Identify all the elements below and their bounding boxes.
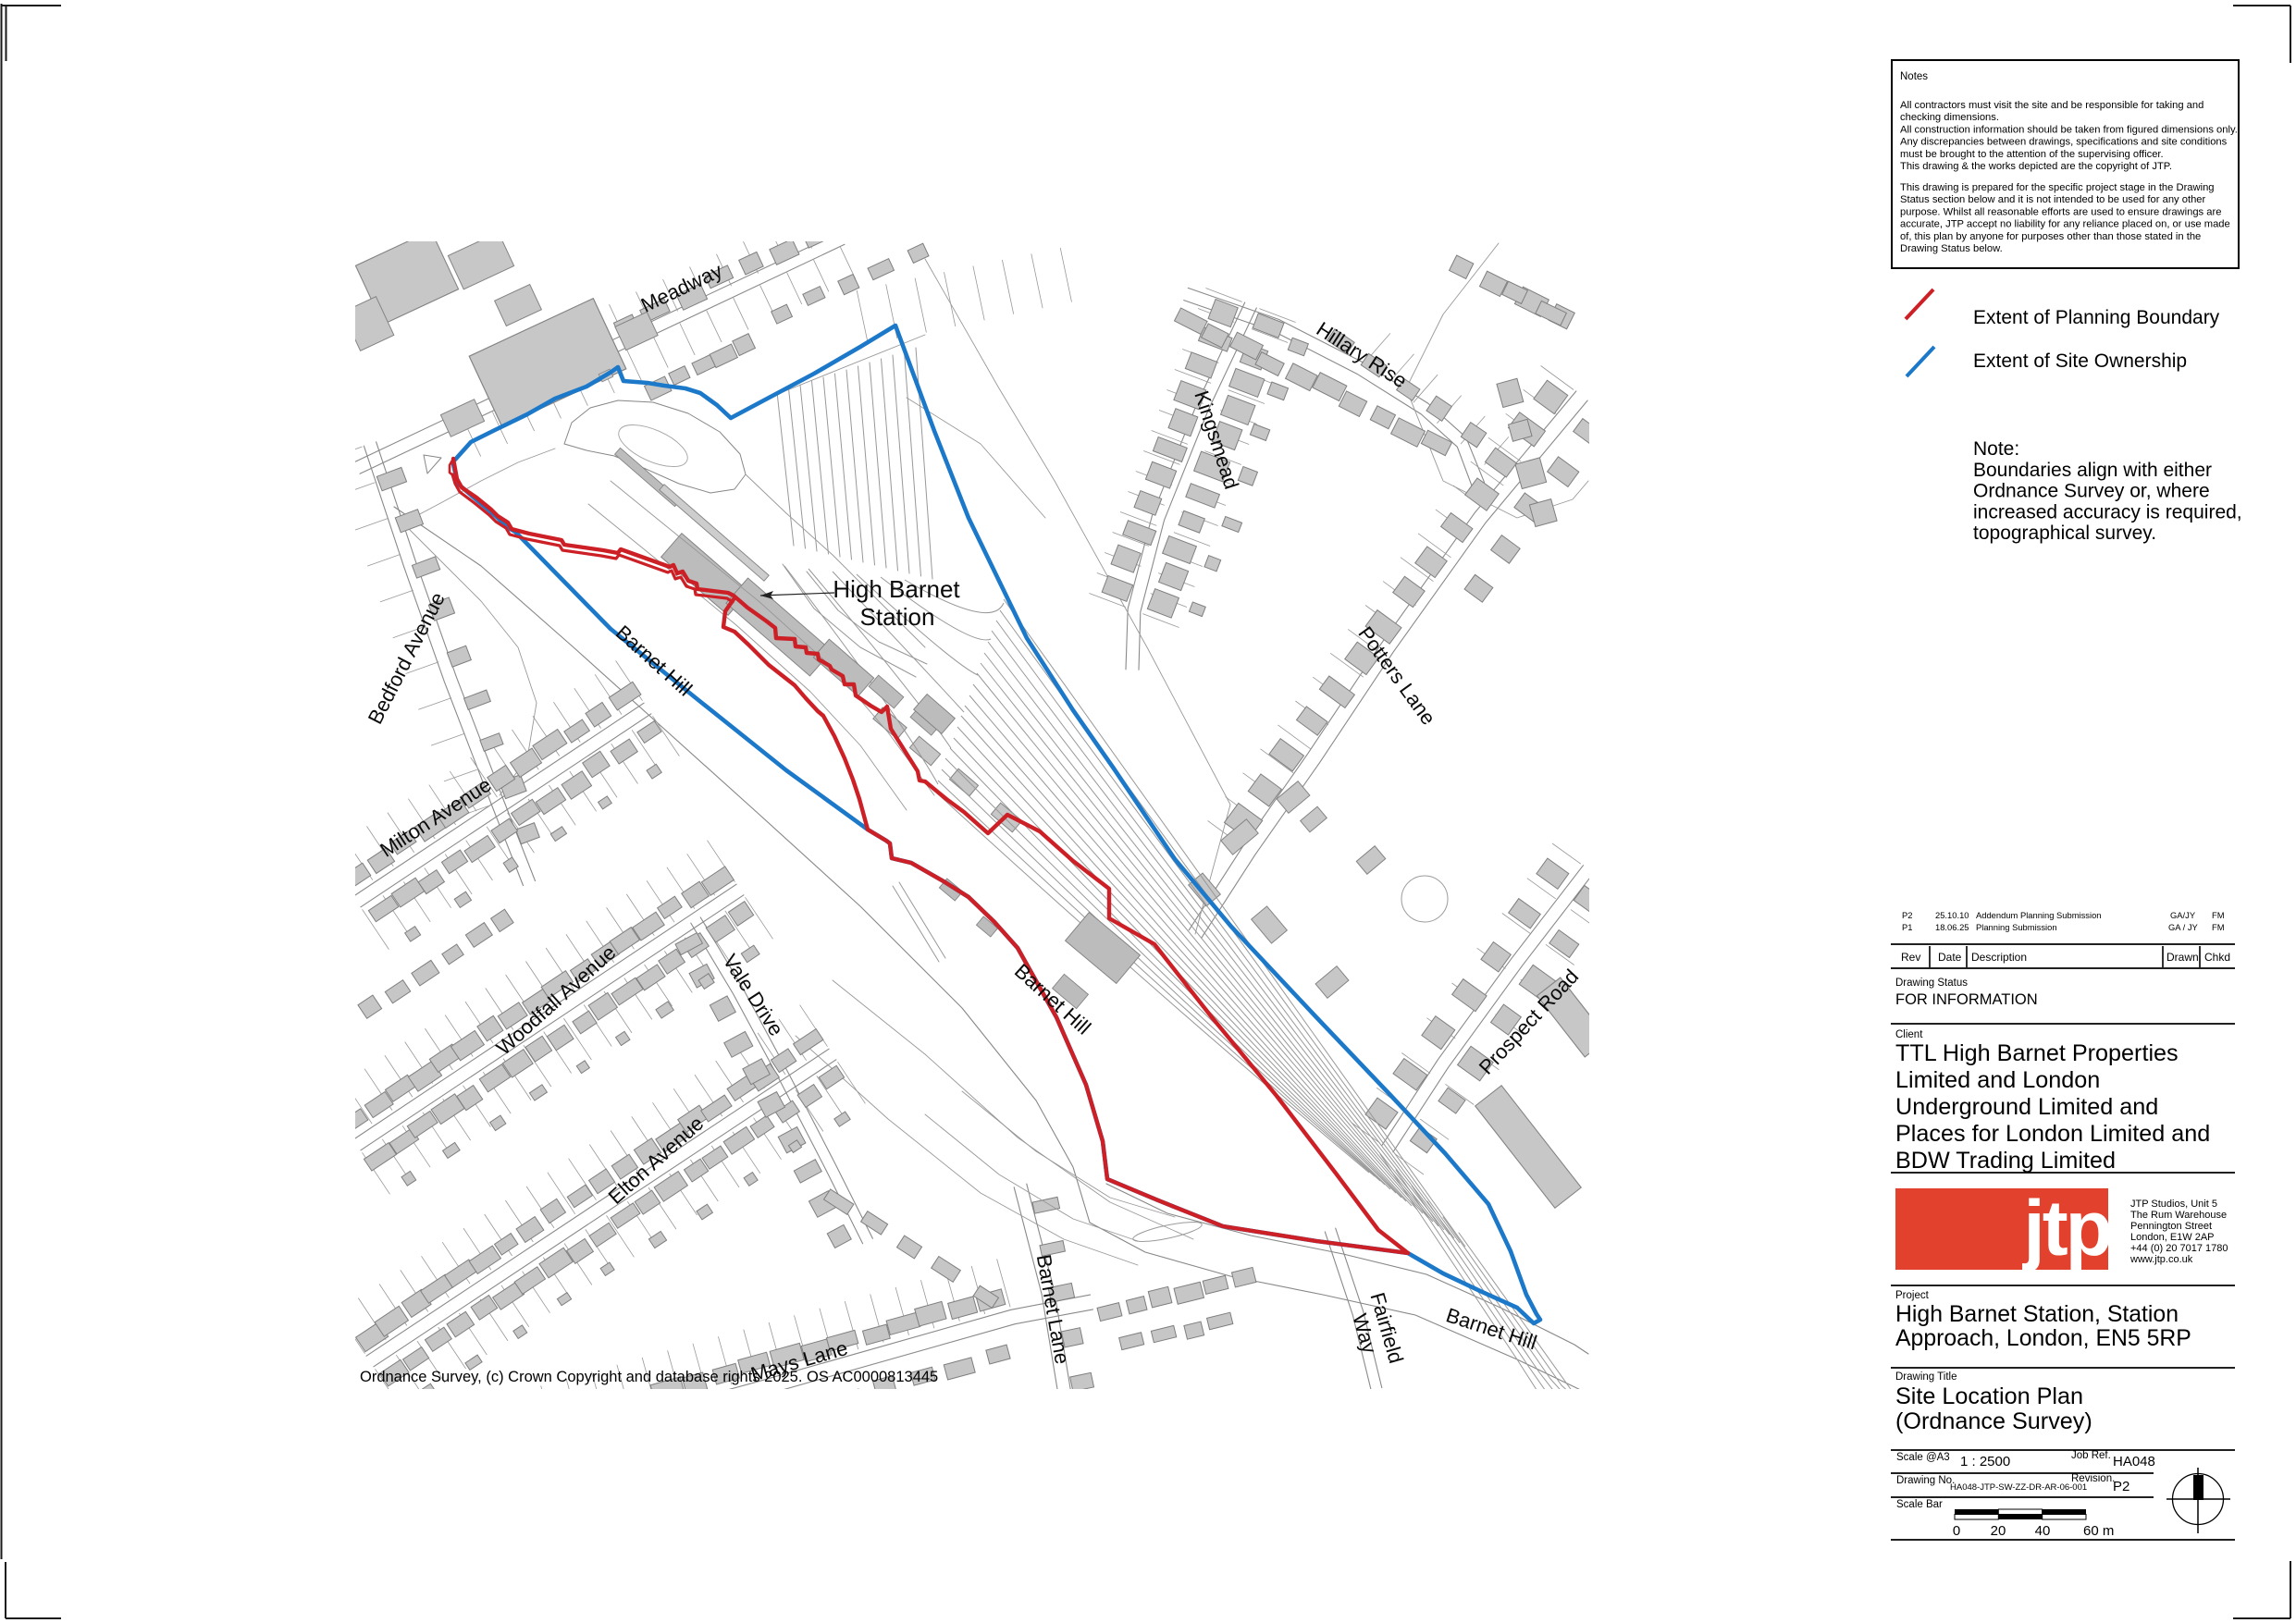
svg-text:This drawing is prepared for t: This drawing is prepared for the specifi… [1900,182,2215,193]
svg-text:Underground Limited and: Underground Limited and [1895,1094,2158,1120]
svg-text:accurate, JTP accept no liabil: accurate, JTP accept no liability for an… [1900,219,2230,230]
svg-text:Approach, London, EN5 5RP: Approach, London, EN5 5RP [1895,1326,2191,1351]
svg-text:Planning Submission: Planning Submission [1976,922,2057,932]
svg-text:Project: Project [1895,1290,1930,1301]
svg-text:purpose. Whilst all reasonable: purpose. Whilst all reasonable efforts a… [1900,206,2221,217]
svg-text:www.jtp.co.uk: www.jtp.co.uk [2129,1254,2193,1265]
svg-text:Pennington Street: Pennington Street [2130,1221,2212,1232]
svg-text:P2: P2 [1902,910,1912,920]
svg-text:Revision.: Revision. [2071,1473,2115,1484]
svg-text:Limited and London: Limited and London [1895,1067,2100,1093]
svg-text:All contractors must visit the: All contractors must visit the site and … [1900,100,2203,111]
svg-text:increased accuracy is required: increased accuracy is required, [1973,501,2242,523]
svg-text:This drawing & the works depic: This drawing & the works depicted are th… [1900,161,2172,172]
svg-text:Chkd: Chkd [2204,951,2230,964]
svg-text:Date: Date [1938,951,1962,964]
svg-text:All construction information s: All construction information should be t… [1900,124,2238,135]
svg-text:(Ordnance Survey): (Ordnance Survey) [1895,1408,2092,1434]
svg-text:The Rum Warehouse: The Rum Warehouse [2130,1210,2227,1221]
svg-text:Rev: Rev [1901,951,1920,964]
svg-text:jtp: jtp [2021,1185,2110,1272]
svg-text:Station: Station [860,603,935,631]
svg-text:Ordnance Survey, (c) Crown Cop: Ordnance Survey, (c) Crown Copyright and… [360,1369,938,1385]
svg-text:FM: FM [2212,910,2225,920]
svg-text:20: 20 [1991,1523,2006,1539]
svg-text:P1: P1 [1902,922,1912,932]
svg-text:Addendum Planning Submission: Addendum Planning Submission [1976,910,2102,920]
svg-text:60 m: 60 m [2083,1523,2114,1539]
svg-text:P2: P2 [2113,1479,2129,1494]
svg-text:Ordnance Survey or, where: Ordnance Survey or, where [1973,481,2210,502]
svg-text:0: 0 [1953,1523,1960,1539]
svg-text:25.10.10: 25.10.10 [1935,910,1969,920]
svg-text:18.06.25: 18.06.25 [1935,922,1969,932]
svg-text:+44 (0) 20 7017 1780: +44 (0) 20 7017 1780 [2130,1243,2228,1254]
svg-text:High Barnet Station, Station: High Barnet Station, Station [1895,1302,2179,1327]
svg-text:Description: Description [1971,951,2027,964]
svg-text:Site Location Plan: Site Location Plan [1895,1383,2083,1409]
svg-text:Drawing Status: Drawing Status [1895,977,1968,989]
svg-text:JTP Studios, Unit 5: JTP Studios, Unit 5 [2130,1199,2217,1210]
svg-text:Extent of Site Ownership: Extent of Site Ownership [1973,350,2187,372]
svg-text:topographical survey.: topographical survey. [1973,523,2156,544]
svg-text:Status section below and it is: Status section below and it is not inten… [1900,194,2206,205]
svg-text:HA048-JTP-SW-ZZ-DR-AR-06-001: HA048-JTP-SW-ZZ-DR-AR-06-001 [1950,1482,2087,1493]
svg-text:FOR INFORMATION: FOR INFORMATION [1895,991,2038,1008]
svg-text:of, this plan by anyone for pu: of, this plan by anyone for purposes oth… [1900,231,2201,242]
svg-text:London, E1W 2AP: London, E1W 2AP [2130,1232,2215,1243]
svg-text:Boundaries align with either: Boundaries align with either [1973,460,2212,481]
svg-text:Client: Client [1895,1029,1923,1040]
svg-text:Scale @A3: Scale @A3 [1896,1452,1950,1463]
svg-text:Drawn: Drawn [2166,951,2199,964]
svg-text:Any discrepancies between draw: Any discrepancies between drawings, spec… [1900,137,2228,148]
svg-text:Drawing Status below.: Drawing Status below. [1900,243,2003,254]
svg-text:must be brought to the attenti: must be brought to the attention of the … [1900,149,2164,160]
svg-text:GA / JY: GA / JY [2168,922,2199,932]
svg-text:Places for London Limited and: Places for London Limited and [1895,1121,2210,1147]
svg-text:HA048: HA048 [2113,1454,2155,1469]
svg-text:High Barnet: High Barnet [833,575,960,603]
svg-text:checking dimensions.: checking dimensions. [1900,112,1999,123]
svg-text:Scale Bar: Scale Bar [1896,1499,1943,1510]
svg-text:40: 40 [2035,1523,2051,1539]
svg-text:FM: FM [2212,922,2225,932]
svg-text:Drawing Title: Drawing Title [1895,1371,1957,1383]
svg-text:Notes: Notes [1900,71,1928,82]
svg-text:BDW Trading Limited: BDW Trading Limited [1895,1148,2116,1174]
svg-text:1 : 2500: 1 : 2500 [1960,1454,2010,1469]
svg-text:GA/JY: GA/JY [2170,910,2196,920]
svg-text:TTL High Barnet Properties: TTL High Barnet Properties [1895,1040,2179,1066]
svg-text:Note:: Note: [1973,438,2019,460]
svg-text:Job Ref.: Job Ref. [2071,1450,2111,1461]
svg-text:Drawing No.: Drawing No. [1896,1475,1955,1486]
svg-text:Extent of Planning Boundary: Extent of Planning Boundary [1973,307,2220,328]
